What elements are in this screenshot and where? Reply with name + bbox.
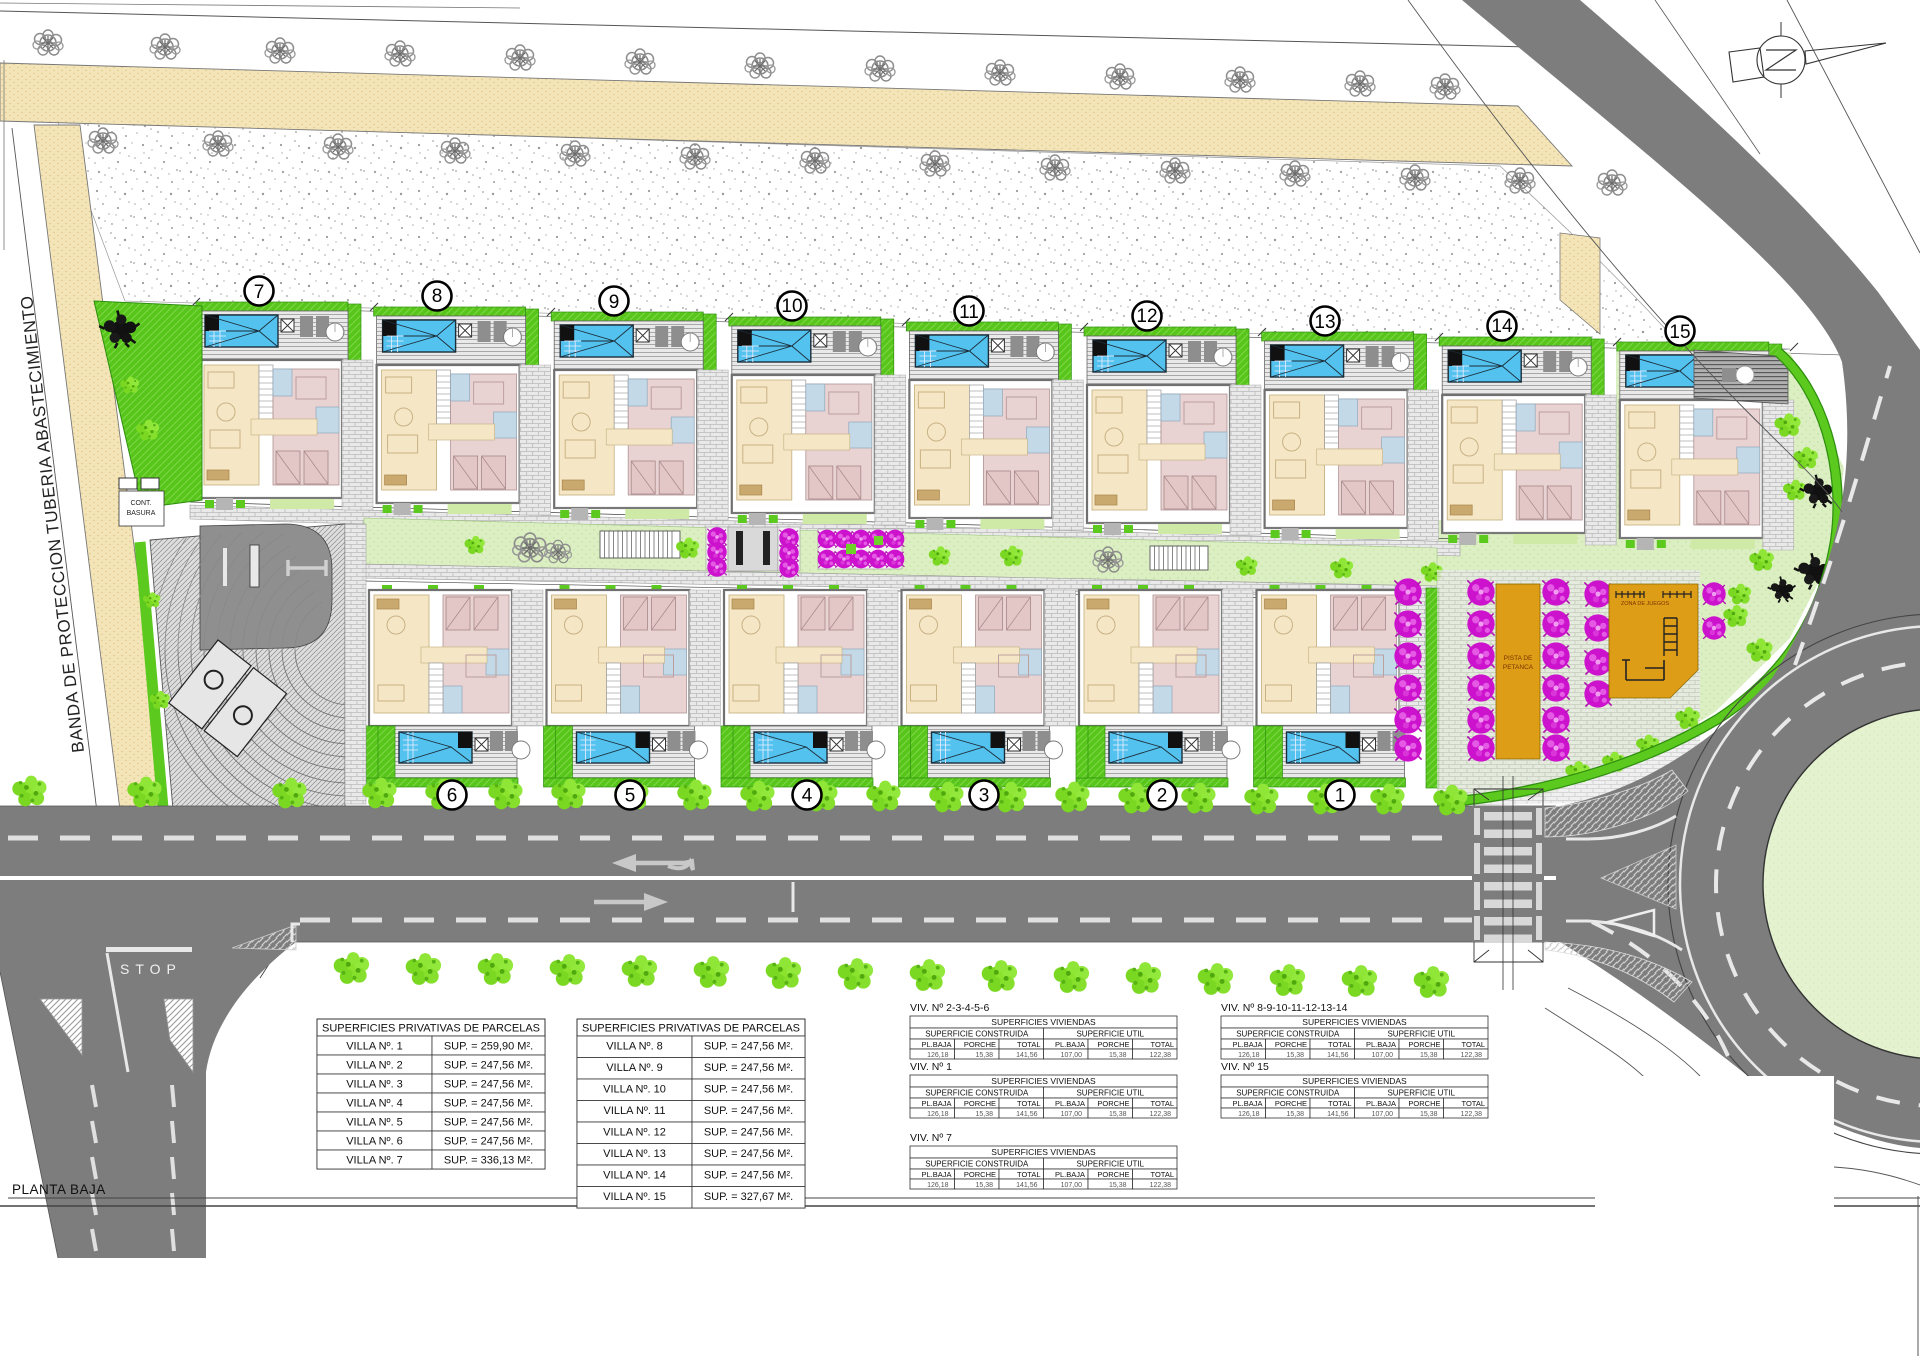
svg-text:SUPERFICIE CONSTRUIDA: SUPERFICIE CONSTRUIDA <box>1236 1030 1340 1039</box>
svg-text:SUP. = 247,56 M².: SUP. = 247,56 M². <box>444 1098 533 1110</box>
svg-text:PORCHE: PORCHE <box>1275 1040 1307 1049</box>
svg-text:1: 1 <box>1335 786 1346 807</box>
svg-text:ZONA DE JUEGOS: ZONA DE JUEGOS <box>1621 601 1670 607</box>
svg-text:4: 4 <box>802 786 813 807</box>
svg-text:13: 13 <box>1314 312 1335 333</box>
svg-text:VILLA Nº. 4: VILLA Nº. 4 <box>346 1098 403 1110</box>
svg-text:SUP. = 247,56 M².: SUP. = 247,56 M². <box>704 1148 793 1160</box>
svg-text:PORCHE: PORCHE <box>964 1099 996 1108</box>
svg-text:VILLA Nº. 14: VILLA Nº. 14 <box>603 1170 666 1182</box>
svg-text:VILLA Nº. 2: VILLA Nº. 2 <box>346 1060 403 1072</box>
svg-text:PL.BAJA: PL.BAJA <box>1055 1099 1085 1108</box>
svg-text:141,56: 141,56 <box>1327 1052 1349 1059</box>
svg-text:SUPERFICIE UTIL: SUPERFICIE UTIL <box>1076 1030 1144 1039</box>
svg-text:PL.BAJA: PL.BAJA <box>1366 1099 1396 1108</box>
svg-text:SUP. = 247,56 M².: SUP. = 247,56 M². <box>704 1062 793 1074</box>
svg-text:PORCHE: PORCHE <box>1408 1040 1440 1049</box>
svg-text:15,38: 15,38 <box>975 1052 993 1059</box>
svg-text:VILLA Nº. 5: VILLA Nº. 5 <box>346 1117 403 1129</box>
svg-text:PORCHE: PORCHE <box>1097 1040 1129 1049</box>
svg-text:15,38: 15,38 <box>975 1182 993 1189</box>
svg-text:STOP: STOP <box>120 961 182 977</box>
svg-text:PL.BAJA: PL.BAJA <box>921 1170 951 1179</box>
svg-text:PORCHE: PORCHE <box>1097 1099 1129 1108</box>
svg-text:SUP. = 327,67 M².: SUP. = 327,67 M². <box>704 1191 793 1203</box>
svg-text:SUP. = 247,56 M².: SUP. = 247,56 M². <box>444 1117 533 1129</box>
svg-text:10: 10 <box>781 296 802 317</box>
svg-text:SUP. = 247,56 M².: SUP. = 247,56 M². <box>444 1060 533 1072</box>
svg-text:VILLA Nº. 9: VILLA Nº. 9 <box>606 1062 663 1074</box>
svg-text:BASURA: BASURA <box>127 510 156 517</box>
svg-text:PORCHE: PORCHE <box>1275 1099 1307 1108</box>
svg-text:PL.BAJA: PL.BAJA <box>921 1099 951 1108</box>
svg-text:SUP. = 247,56 M².: SUP. = 247,56 M². <box>444 1136 533 1148</box>
svg-text:122,38: 122,38 <box>1461 1111 1483 1118</box>
svg-text:SUPERFICIES VIVIENDAS: SUPERFICIES VIVIENDAS <box>991 1076 1096 1086</box>
svg-text:122,38: 122,38 <box>1150 1182 1172 1189</box>
svg-text:PL.BAJA: PL.BAJA <box>1055 1170 1085 1179</box>
svg-text:SUPERFICIE UTIL: SUPERFICIE UTIL <box>1076 1160 1144 1169</box>
svg-text:VILLA Nº. 1: VILLA Nº. 1 <box>346 1041 403 1053</box>
svg-text:TOTAL: TOTAL <box>1017 1099 1040 1108</box>
svg-text:PORCHE: PORCHE <box>964 1170 996 1179</box>
svg-text:SUPERFICIE CONSTRUIDA: SUPERFICIE CONSTRUIDA <box>1236 1089 1340 1098</box>
svg-text:PL.BAJA: PL.BAJA <box>1055 1040 1085 1049</box>
svg-text:141,56: 141,56 <box>1016 1052 1038 1059</box>
svg-text:SUP. = 336,13 M².: SUP. = 336,13 M². <box>444 1155 533 1167</box>
svg-text:PORCHE: PORCHE <box>1408 1099 1440 1108</box>
svg-text:VILLA Nº. 3: VILLA Nº. 3 <box>346 1079 403 1091</box>
svg-text:VILLA Nº. 10: VILLA Nº. 10 <box>603 1084 666 1096</box>
svg-text:SUPERFICIES PRIVATIVAS DE PARC: SUPERFICIES PRIVATIVAS DE PARCELAS <box>582 1023 800 1035</box>
svg-text:107,00: 107,00 <box>1372 1052 1394 1059</box>
svg-text:VIV. Nº 2-3-4-5-6: VIV. Nº 2-3-4-5-6 <box>910 1002 989 1014</box>
svg-text:12: 12 <box>1136 306 1157 327</box>
svg-text:122,38: 122,38 <box>1150 1052 1172 1059</box>
svg-text:141,56: 141,56 <box>1016 1182 1038 1189</box>
svg-text:8: 8 <box>432 286 443 307</box>
svg-text:7: 7 <box>254 282 265 303</box>
svg-text:126,18: 126,18 <box>1238 1052 1260 1059</box>
svg-text:SUPERFICIES VIVIENDAS: SUPERFICIES VIVIENDAS <box>991 1017 1096 1027</box>
svg-text:TOTAL: TOTAL <box>1462 1099 1485 1108</box>
svg-text:VILLA Nº. 11: VILLA Nº. 11 <box>604 1105 666 1117</box>
svg-text:15,38: 15,38 <box>1109 1182 1127 1189</box>
svg-text:15,38: 15,38 <box>1420 1111 1438 1118</box>
svg-text:VIV. Nº 1: VIV. Nº 1 <box>910 1061 952 1073</box>
svg-text:PL.BAJA: PL.BAJA <box>921 1040 951 1049</box>
svg-text:141,56: 141,56 <box>1016 1111 1038 1118</box>
svg-text:SUPERFICIE CONSTRUIDA: SUPERFICIE CONSTRUIDA <box>925 1030 1029 1039</box>
svg-text:SUP. = 247,56 M².: SUP. = 247,56 M². <box>704 1127 793 1139</box>
svg-text:TOTAL: TOTAL <box>1017 1040 1040 1049</box>
svg-text:3: 3 <box>979 786 990 807</box>
svg-text:SUP. = 247,56 M².: SUP. = 247,56 M². <box>704 1041 793 1053</box>
svg-text:122,38: 122,38 <box>1150 1111 1172 1118</box>
svg-text:141,56: 141,56 <box>1327 1111 1349 1118</box>
svg-text:11: 11 <box>959 302 979 323</box>
svg-text:VILLA Nº. 15: VILLA Nº. 15 <box>603 1191 666 1203</box>
svg-text:VILLA Nº. 8: VILLA Nº. 8 <box>606 1041 663 1053</box>
svg-text:SUP. = 247,56 M².: SUP. = 247,56 M². <box>444 1079 533 1091</box>
svg-text:15,38: 15,38 <box>1109 1052 1127 1059</box>
svg-text:SUPERFICIES PRIVATIVAS DE PARC: SUPERFICIES PRIVATIVAS DE PARCELAS <box>322 1023 540 1035</box>
svg-text:TOTAL: TOTAL <box>1328 1099 1351 1108</box>
svg-text:107,00: 107,00 <box>1061 1182 1083 1189</box>
svg-text:CONT.: CONT. <box>131 500 152 507</box>
svg-text:SUP. = 247,56 M².: SUP. = 247,56 M². <box>704 1170 793 1182</box>
svg-text:TOTAL: TOTAL <box>1017 1170 1040 1179</box>
svg-text:2: 2 <box>1157 786 1168 807</box>
svg-text:6: 6 <box>447 786 458 807</box>
svg-text:VILLA Nº. 7: VILLA Nº. 7 <box>346 1155 403 1167</box>
svg-text:PETANCA: PETANCA <box>1503 664 1534 671</box>
svg-text:VILLA Nº. 6: VILLA Nº. 6 <box>346 1136 403 1148</box>
svg-text:15,38: 15,38 <box>1286 1111 1304 1118</box>
svg-text:VIV. Nº 8-9-10-11-12-13-14: VIV. Nº 8-9-10-11-12-13-14 <box>1221 1002 1348 1014</box>
svg-text:VILLA Nº. 12: VILLA Nº. 12 <box>603 1127 666 1139</box>
svg-text:SUPERFICIE CONSTRUIDA: SUPERFICIE CONSTRUIDA <box>925 1089 1029 1098</box>
svg-text:SUP. = 247,56 M².: SUP. = 247,56 M². <box>704 1084 793 1096</box>
svg-text:15,38: 15,38 <box>1420 1052 1438 1059</box>
svg-text:15,38: 15,38 <box>975 1111 993 1118</box>
svg-text:TOTAL: TOTAL <box>1462 1040 1485 1049</box>
svg-text:107,00: 107,00 <box>1061 1111 1083 1118</box>
svg-text:PORCHE: PORCHE <box>1097 1170 1129 1179</box>
svg-text:PISTA DE: PISTA DE <box>1504 655 1533 662</box>
svg-text:15,38: 15,38 <box>1286 1052 1304 1059</box>
svg-text:PL.BAJA: PL.BAJA <box>1366 1040 1396 1049</box>
svg-text:TOTAL: TOTAL <box>1151 1099 1174 1108</box>
svg-text:TOTAL: TOTAL <box>1151 1040 1174 1049</box>
svg-text:126,18: 126,18 <box>927 1182 949 1189</box>
svg-text:15,38: 15,38 <box>1109 1111 1127 1118</box>
svg-text:VIV. Nº 7: VIV. Nº 7 <box>910 1132 952 1144</box>
svg-text:PLANTA BAJA: PLANTA BAJA <box>12 1182 106 1197</box>
svg-text:SUPERFICIES VIVIENDAS: SUPERFICIES VIVIENDAS <box>991 1147 1096 1157</box>
svg-text:107,00: 107,00 <box>1061 1052 1083 1059</box>
svg-text:107,00: 107,00 <box>1372 1111 1394 1118</box>
svg-text:126,18: 126,18 <box>927 1111 949 1118</box>
svg-text:15: 15 <box>1669 322 1690 343</box>
svg-text:PL.BAJA: PL.BAJA <box>1232 1099 1262 1108</box>
svg-text:SUPERFICIE UTIL: SUPERFICIE UTIL <box>1387 1030 1455 1039</box>
svg-text:SUPERFICIE UTIL: SUPERFICIE UTIL <box>1076 1089 1144 1098</box>
svg-text:PORCHE: PORCHE <box>964 1040 996 1049</box>
svg-text:TOTAL: TOTAL <box>1328 1040 1351 1049</box>
svg-text:SUPERFICIES VIVIENDAS: SUPERFICIES VIVIENDAS <box>1302 1076 1407 1086</box>
svg-text:SUPERFICIE CONSTRUIDA: SUPERFICIE CONSTRUIDA <box>925 1160 1029 1169</box>
svg-text:122,38: 122,38 <box>1461 1052 1483 1059</box>
svg-text:5: 5 <box>625 786 636 807</box>
svg-text:126,18: 126,18 <box>927 1052 949 1059</box>
svg-text:VIV. Nº 15: VIV. Nº 15 <box>1221 1061 1269 1073</box>
svg-text:SUPERFICIE UTIL: SUPERFICIE UTIL <box>1387 1089 1455 1098</box>
svg-text:PL.BAJA: PL.BAJA <box>1232 1040 1262 1049</box>
svg-text:126,18: 126,18 <box>1238 1111 1260 1118</box>
svg-text:SUP. = 259,90 M².: SUP. = 259,90 M². <box>444 1041 533 1053</box>
svg-text:TOTAL: TOTAL <box>1151 1170 1174 1179</box>
svg-text:9: 9 <box>609 292 620 313</box>
svg-text:SUP. = 247,56 M².: SUP. = 247,56 M². <box>704 1105 793 1117</box>
svg-text:VILLA Nº. 13: VILLA Nº. 13 <box>603 1148 666 1160</box>
svg-text:14: 14 <box>1491 316 1513 337</box>
svg-text:SUPERFICIES VIVIENDAS: SUPERFICIES VIVIENDAS <box>1302 1017 1407 1027</box>
